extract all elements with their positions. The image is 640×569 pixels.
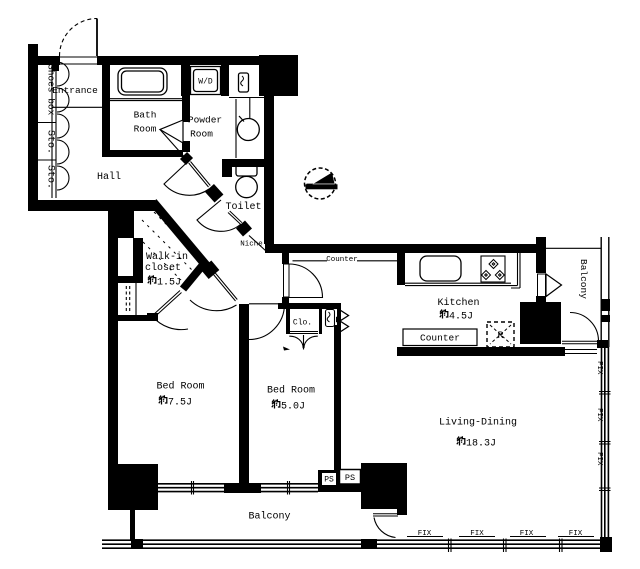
svg-text:closet: closet (145, 262, 181, 274)
svg-text:Toilet: Toilet (225, 201, 261, 213)
svg-text:Bed Room: Bed Room (267, 385, 315, 397)
svg-text:Counter: Counter (326, 256, 358, 264)
svg-text:PS: PS (324, 476, 334, 485)
svg-text:FIX: FIX (595, 452, 603, 466)
svg-text:Kitchen: Kitchen (437, 297, 479, 309)
svg-text:5.0J: 5.0J (281, 402, 305, 413)
svg-text:Powder: Powder (188, 115, 222, 126)
svg-text:Walk-in: Walk-in (146, 251, 188, 263)
svg-text:Bath: Bath (134, 110, 157, 121)
svg-text:Balcony: Balcony (248, 511, 290, 523)
svg-text:FIX: FIX (520, 530, 534, 538)
svg-text:Niche: Niche (240, 241, 263, 249)
svg-text:Clo.: Clo. (293, 319, 312, 328)
svg-text:Room: Room (134, 124, 157, 135)
svg-text:Room: Room (190, 129, 213, 140)
svg-text:FIX: FIX (595, 408, 603, 422)
svg-text:1.5J: 1.5J (157, 278, 181, 289)
svg-text:Shoes box: Shoes box (46, 64, 57, 116)
svg-text:Living-Dining: Living-Dining (439, 417, 517, 429)
svg-text:Balcony: Balcony (578, 259, 589, 299)
svg-text:18.3J: 18.3J (466, 439, 496, 450)
svg-text:Sto.: Sto. (45, 165, 56, 189)
svg-text:R: R (497, 331, 503, 342)
svg-text:Counter: Counter (420, 333, 460, 344)
svg-text:Hall: Hall (97, 171, 121, 183)
svg-text:Sto.: Sto. (45, 130, 56, 154)
svg-text:PS: PS (345, 473, 355, 483)
svg-text:FIX: FIX (569, 530, 583, 538)
svg-text:FIX: FIX (418, 530, 432, 538)
svg-text:Entrance: Entrance (52, 85, 98, 96)
svg-text:FIX: FIX (470, 530, 484, 538)
svg-text:Bed Room: Bed Room (156, 381, 204, 393)
svg-text:FIX: FIX (595, 361, 603, 375)
svg-text:W/D: W/D (198, 78, 213, 87)
svg-text:7.5J: 7.5J (168, 398, 192, 409)
svg-text:4.5J: 4.5J (449, 312, 473, 323)
